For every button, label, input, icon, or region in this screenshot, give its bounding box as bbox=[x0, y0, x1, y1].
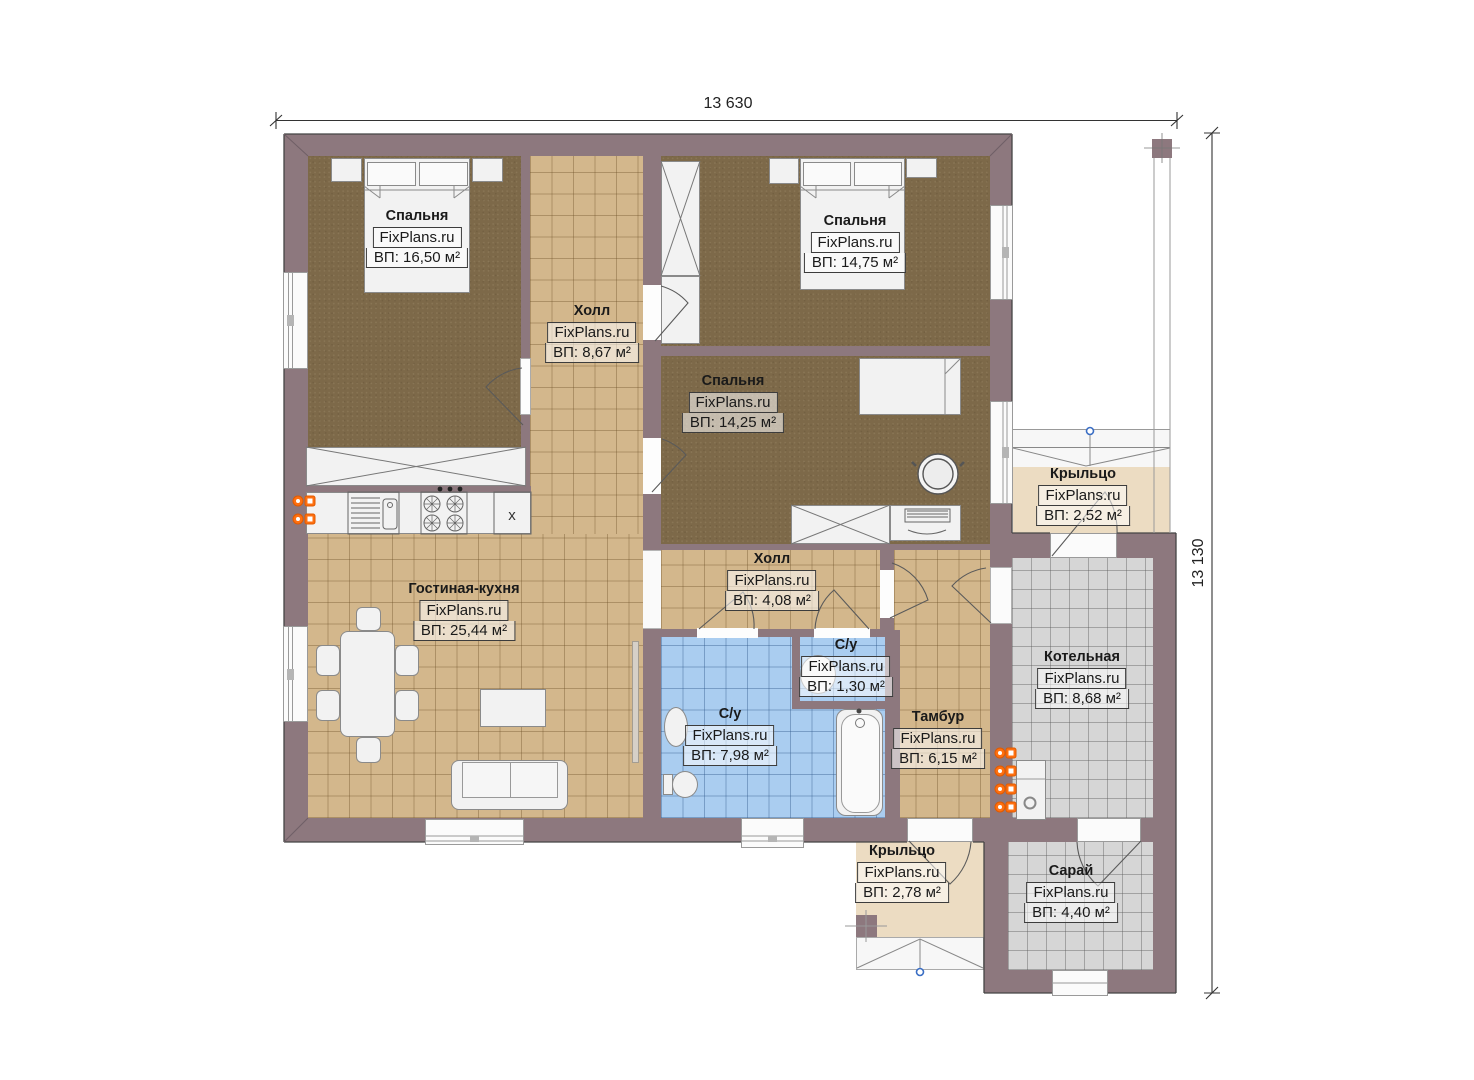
svg-text:13 130: 13 130 bbox=[1190, 538, 1207, 587]
svg-text:x: x bbox=[508, 507, 516, 524]
svg-text:13 630: 13 630 bbox=[704, 95, 753, 112]
